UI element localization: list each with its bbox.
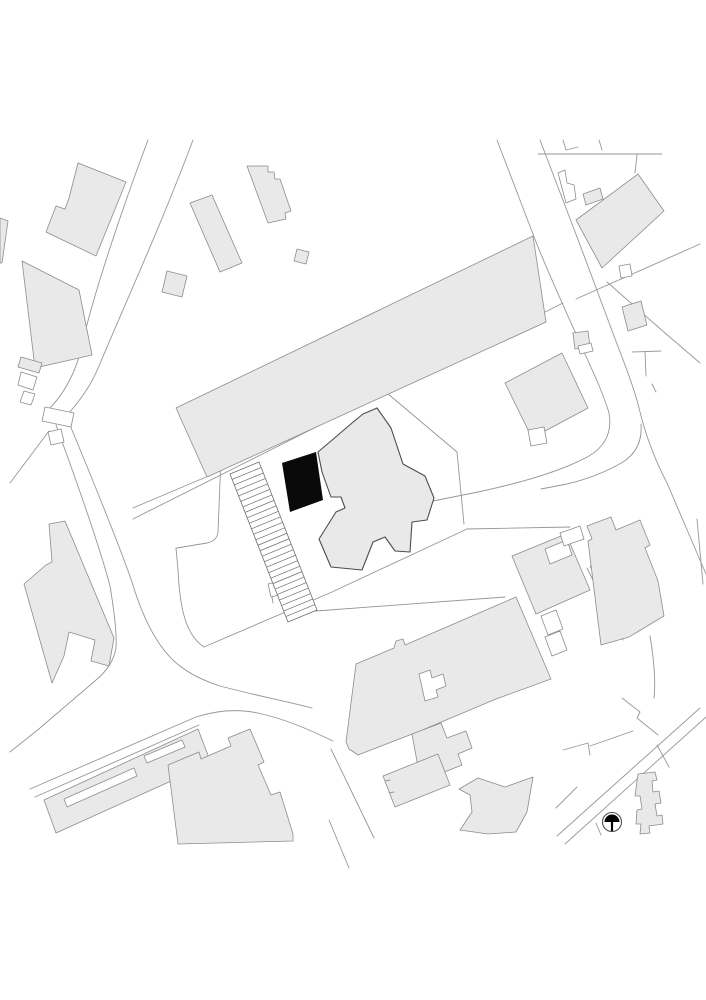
white-marker-tick [272, 597, 273, 603]
building-small-parallelogram [162, 271, 187, 297]
road-southeast-pair-1 [557, 708, 700, 836]
top-right-stub-1 [563, 140, 578, 150]
building-left-sliver [0, 218, 8, 263]
north-arrow [603, 813, 622, 832]
white-outline-structures [18, 170, 632, 807]
compass-tick-line [596, 823, 601, 835]
road-south-center-2 [329, 820, 349, 868]
white-notch-square-building [528, 427, 547, 446]
block-corner-west [176, 548, 204, 647]
gate-small-square [48, 429, 64, 445]
church-building [318, 408, 434, 570]
building-left-wedge [22, 261, 92, 368]
parcel-zig-bottom-right-3 [556, 787, 577, 808]
curve-lower-right [650, 636, 655, 698]
building-long-rect-top [190, 195, 242, 272]
parcel-mark-3 [652, 384, 656, 392]
parcel-line-southwest [10, 431, 49, 483]
building-h-shape-left [24, 521, 114, 683]
parcel-zig-bottom-right-2 [590, 731, 633, 746]
road-southeast-pair-2 [565, 717, 706, 844]
zigzag-lower-right [622, 698, 658, 735]
building-small-rect-bottom [383, 754, 450, 807]
boundary-top-right-drop [635, 155, 637, 173]
road-south-center-1 [331, 749, 374, 838]
white-rect-east-2 [560, 526, 584, 546]
north-arrow-stem [611, 822, 613, 831]
highlighted-new-building [282, 452, 323, 512]
building-tilted-square-right [622, 301, 647, 331]
building-arrow-bottom [459, 777, 533, 834]
building-tall-bottomright [635, 772, 663, 834]
road-southeast-branch [657, 745, 669, 767]
building-east-block [512, 534, 590, 614]
gate-bracket [42, 407, 74, 427]
parcel-shallow-line [316, 597, 505, 611]
parcel-mark-1 [632, 351, 661, 352]
gray-band-building-east [576, 174, 664, 268]
right-edge-line [697, 519, 703, 584]
white-square-right [619, 264, 632, 278]
white-bracket-1 [18, 372, 37, 390]
road-east-corner-inner [541, 424, 641, 489]
context-buildings [0, 163, 664, 844]
building-tiny-square-top [294, 249, 309, 264]
top-right-stub-2 [599, 140, 602, 150]
parcel-zig-bottom-right-1 [563, 743, 590, 755]
church-footprint [318, 408, 434, 570]
narrow-road-upper-left [133, 477, 206, 508]
new-building-footprint [282, 452, 323, 512]
site-plan-page [0, 0, 706, 1000]
building-bottom-center [346, 597, 551, 755]
white-bracket-2 [20, 391, 35, 405]
white-flag-topright [558, 170, 576, 203]
site-plan-canvas [0, 0, 706, 1000]
building-square-center-right [505, 353, 588, 438]
building-topleft-square [46, 163, 126, 256]
parcel-mark-2 [645, 352, 646, 376]
building-jagged-top [247, 166, 291, 223]
building-big-right [587, 517, 664, 645]
